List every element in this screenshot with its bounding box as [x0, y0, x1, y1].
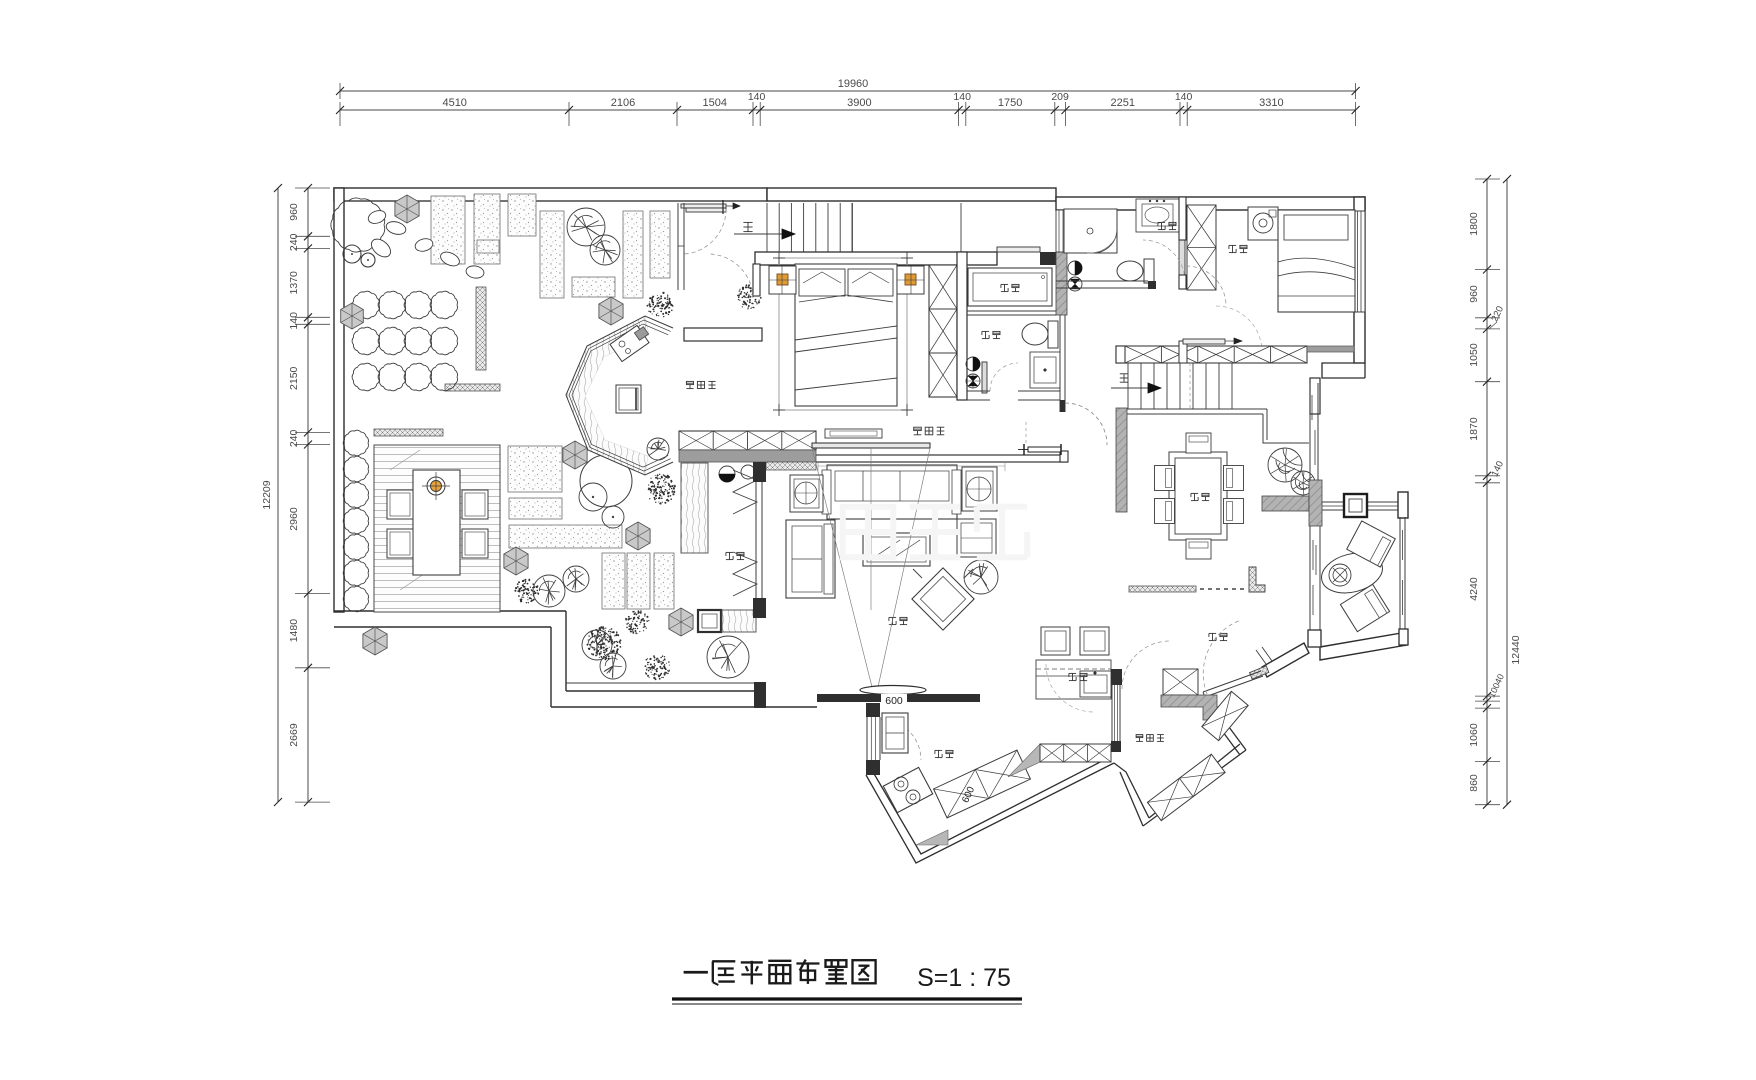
svg-text:240: 240 — [288, 233, 300, 251]
svg-text:960: 960 — [288, 203, 300, 221]
svg-text:1370: 1370 — [288, 271, 300, 295]
svg-text:1750: 1750 — [998, 97, 1022, 109]
svg-text:1800: 1800 — [1468, 212, 1480, 236]
svg-text:600: 600 — [885, 695, 903, 707]
svg-text:2669: 2669 — [288, 723, 300, 747]
svg-text:140: 140 — [748, 91, 766, 103]
svg-text:3310: 3310 — [1259, 97, 1283, 109]
svg-text:4240: 4240 — [1468, 577, 1480, 601]
svg-text:1870: 1870 — [1468, 417, 1480, 441]
svg-text:4510: 4510 — [442, 97, 466, 109]
svg-text:12209: 12209 — [261, 480, 273, 509]
svg-text:140: 140 — [1175, 91, 1193, 103]
svg-text:1050: 1050 — [1468, 343, 1480, 367]
svg-text:209: 209 — [1051, 91, 1069, 103]
svg-text:2150: 2150 — [288, 366, 300, 390]
svg-text:S=1 : 75: S=1 : 75 — [917, 964, 1011, 992]
svg-text:140: 140 — [953, 91, 971, 103]
svg-text:140: 140 — [288, 312, 300, 330]
svg-text:1060: 1060 — [1468, 723, 1480, 747]
svg-text:12440: 12440 — [1510, 635, 1522, 664]
svg-text:3900: 3900 — [847, 97, 871, 109]
svg-text:2960: 2960 — [288, 507, 300, 531]
svg-text:1480: 1480 — [288, 619, 300, 643]
svg-text:1504: 1504 — [703, 97, 727, 109]
svg-text:960: 960 — [1468, 285, 1480, 303]
svg-text:2106: 2106 — [611, 97, 635, 109]
svg-text:240: 240 — [288, 429, 300, 447]
svg-text:860: 860 — [1468, 774, 1480, 792]
svg-text:19960: 19960 — [838, 78, 869, 90]
svg-text:2251: 2251 — [1111, 97, 1135, 109]
